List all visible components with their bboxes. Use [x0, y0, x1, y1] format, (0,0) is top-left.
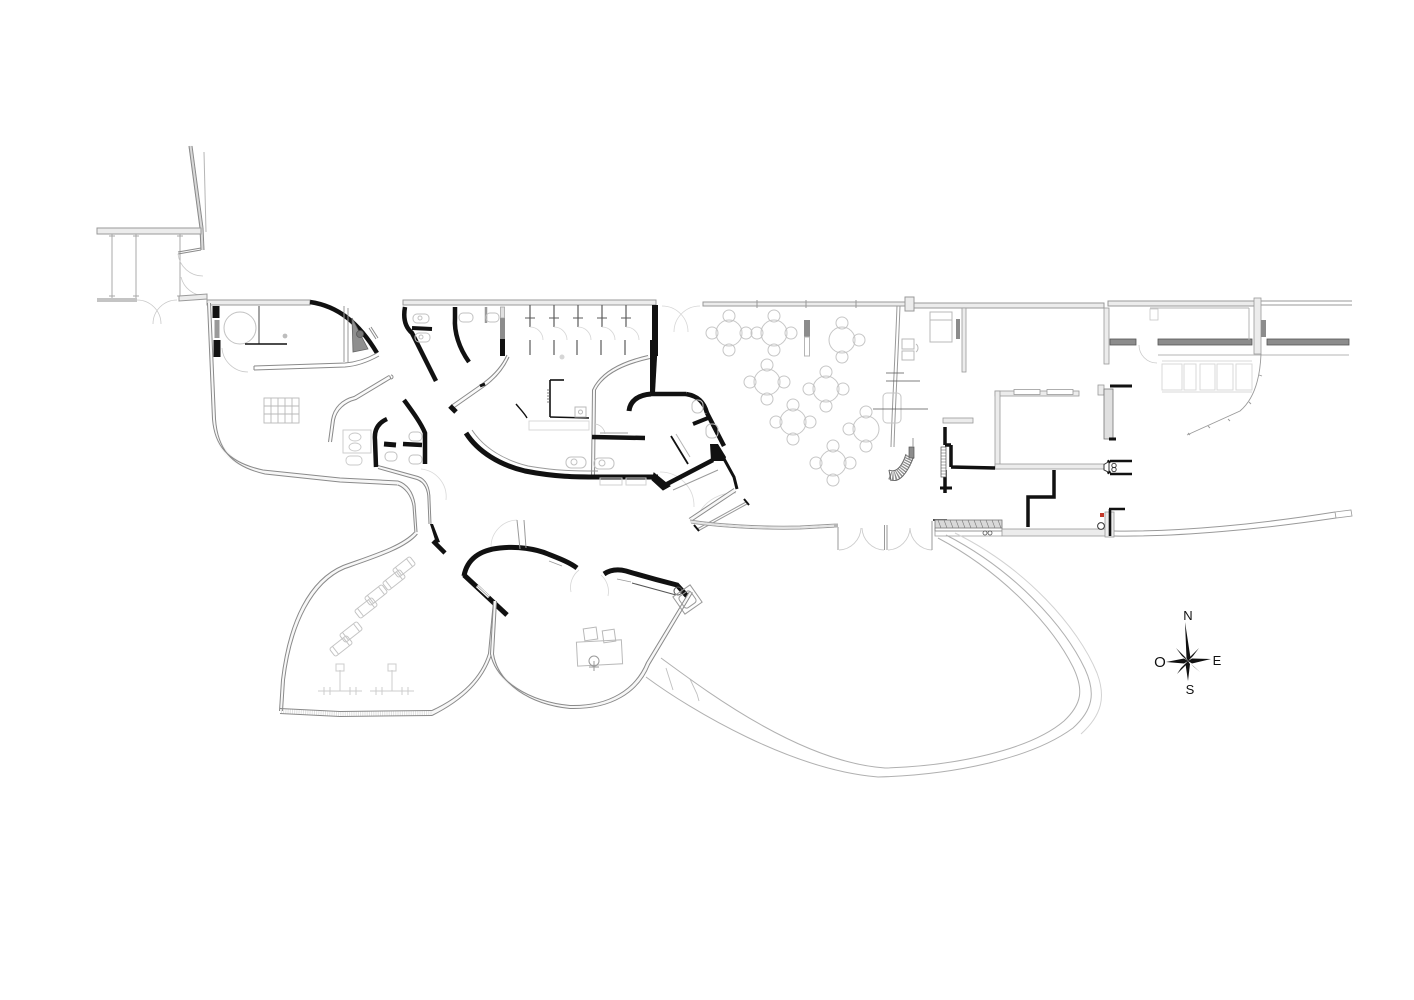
svg-text:O: O [1154, 654, 1166, 671]
svg-text:S: S [1186, 682, 1195, 697]
svg-text:E: E [1213, 653, 1222, 668]
svg-text:N: N [1183, 608, 1192, 623]
